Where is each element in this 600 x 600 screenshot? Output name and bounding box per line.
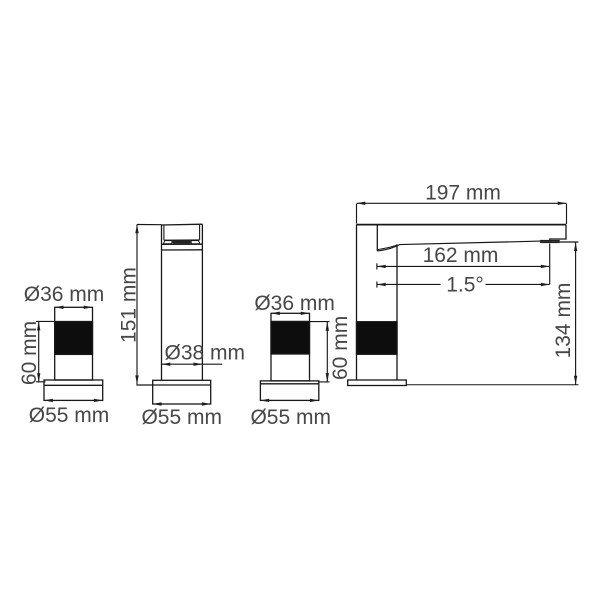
svg-text:60 mm: 60 mm	[329, 316, 352, 380]
svg-text:Ø36 mm: Ø36 mm	[24, 283, 105, 306]
svg-text:Ø55 mm: Ø55 mm	[250, 406, 331, 429]
svg-text:197 mm: 197 mm	[425, 182, 501, 205]
svg-text:134 mm: 134 mm	[552, 283, 575, 359]
svg-text:1.5°: 1.5°	[446, 274, 484, 297]
svg-text:Ø55 mm: Ø55 mm	[141, 406, 222, 429]
svg-text:Ø55 mm: Ø55 mm	[29, 404, 110, 427]
svg-text:162 mm: 162 mm	[423, 244, 499, 267]
svg-text:Ø38 mm: Ø38 mm	[165, 342, 246, 365]
svg-text:60 mm: 60 mm	[18, 321, 41, 385]
svg-text:151 mm: 151 mm	[118, 267, 141, 343]
svg-text:Ø36 mm: Ø36 mm	[254, 292, 335, 315]
